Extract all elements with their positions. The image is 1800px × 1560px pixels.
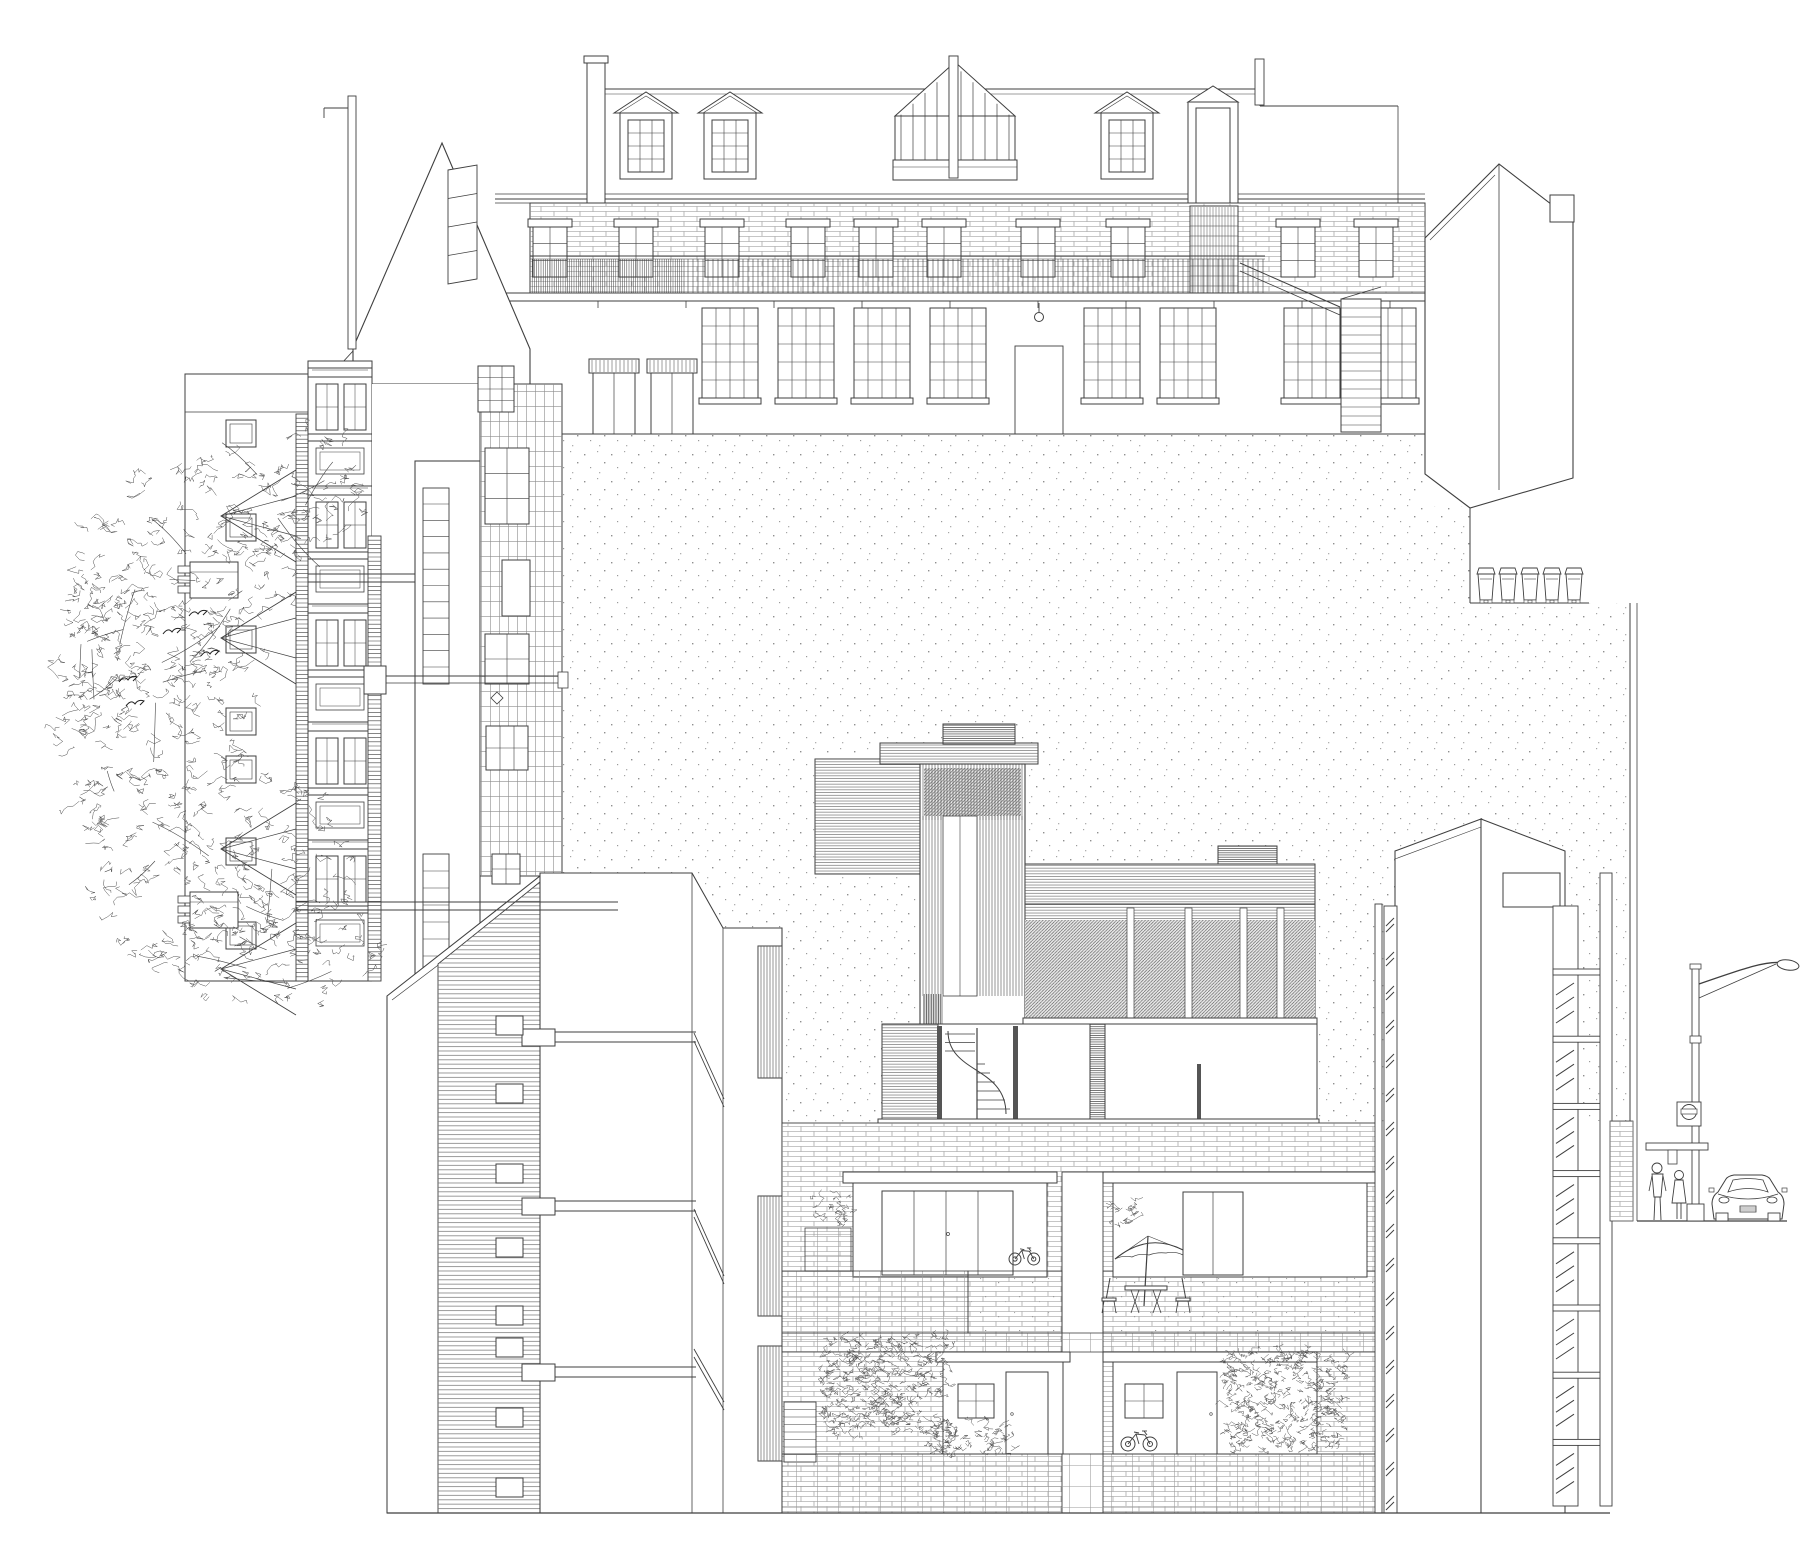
- lintel: [700, 219, 744, 227]
- right-balcony-tower: [1375, 819, 1612, 1513]
- balcony-slab: [1553, 1305, 1605, 1311]
- parapet: [1503, 873, 1560, 907]
- flue: [348, 96, 356, 349]
- wheelie-bin: [1521, 568, 1539, 603]
- small-window: [496, 1408, 523, 1427]
- balcony-slab: [1553, 1171, 1605, 1177]
- small-window: [496, 1306, 523, 1325]
- balcony-slab: [1553, 969, 1605, 975]
- right-gabled-building: [1425, 164, 1574, 508]
- sill: [699, 398, 761, 404]
- balcony-slab: [1553, 1103, 1605, 1109]
- sliding-doors: [882, 1191, 1013, 1275]
- small-window: [496, 1478, 523, 1497]
- chimney-cap: [584, 56, 608, 63]
- cornice-block: [1550, 195, 1574, 222]
- lintel: [1354, 219, 1398, 227]
- sill: [927, 398, 989, 404]
- balcony-slab: [1553, 1372, 1605, 1378]
- wheelie-bin: [1565, 568, 1583, 603]
- lintel: [614, 219, 658, 227]
- balcony-slab: [1553, 1238, 1605, 1244]
- lintel: [1016, 219, 1060, 227]
- balcony-slab: [1553, 1439, 1605, 1445]
- flue: [1255, 59, 1264, 105]
- walkway: [495, 293, 1425, 301]
- balcony-slab: [1553, 1036, 1605, 1042]
- fascia: [936, 1352, 1070, 1362]
- slab-connector: [522, 1029, 555, 1046]
- pipe-bracket: [364, 666, 386, 694]
- elevation-svg: Rear courtyard elevation — architectural…: [40, 16, 1800, 1544]
- mews-terrace: [495, 51, 1425, 434]
- wheelie-bin: [1499, 568, 1517, 603]
- soldier-lintel: [647, 359, 697, 373]
- sill: [851, 398, 913, 404]
- soldier-lintel: [589, 359, 639, 373]
- side-chimney: [178, 892, 238, 928]
- elevation-drawing: Rear courtyard elevation — architectural…: [40, 16, 1800, 1544]
- small-window: [496, 1016, 523, 1035]
- slab-connector: [522, 1364, 555, 1381]
- door-dormer: [1188, 86, 1238, 206]
- left-terrace: [178, 361, 372, 1015]
- lintel: [528, 219, 572, 227]
- chimney: [587, 63, 605, 203]
- edge-louvres: [1384, 906, 1397, 1513]
- sill: [1157, 398, 1219, 404]
- lintel: [854, 219, 898, 227]
- lintel: [1106, 219, 1150, 227]
- recess: [502, 560, 530, 616]
- wheelie-bin: [1543, 568, 1561, 603]
- balustrade-strip: [1553, 906, 1578, 1506]
- balcony-fascia: [1103, 1172, 1377, 1183]
- lintel: [786, 219, 830, 227]
- roundel-sign: [1677, 1102, 1701, 1126]
- sill: [1081, 398, 1143, 404]
- sill: [1281, 398, 1343, 404]
- sill: [775, 398, 837, 404]
- courtyard-flats: [782, 1123, 1377, 1513]
- door: [1196, 108, 1230, 204]
- small-window: [496, 1238, 523, 1257]
- small-window: [496, 1164, 523, 1183]
- wheelie-bin: [1477, 568, 1495, 603]
- lintel: [1276, 219, 1320, 227]
- small-window: [496, 1338, 523, 1357]
- lintel: [922, 219, 966, 227]
- balcony-fascia: [843, 1172, 1057, 1183]
- corner-volume: [540, 873, 782, 1513]
- small-window: [496, 1084, 523, 1103]
- door: [1015, 346, 1063, 434]
- slab-connector: [522, 1198, 555, 1215]
